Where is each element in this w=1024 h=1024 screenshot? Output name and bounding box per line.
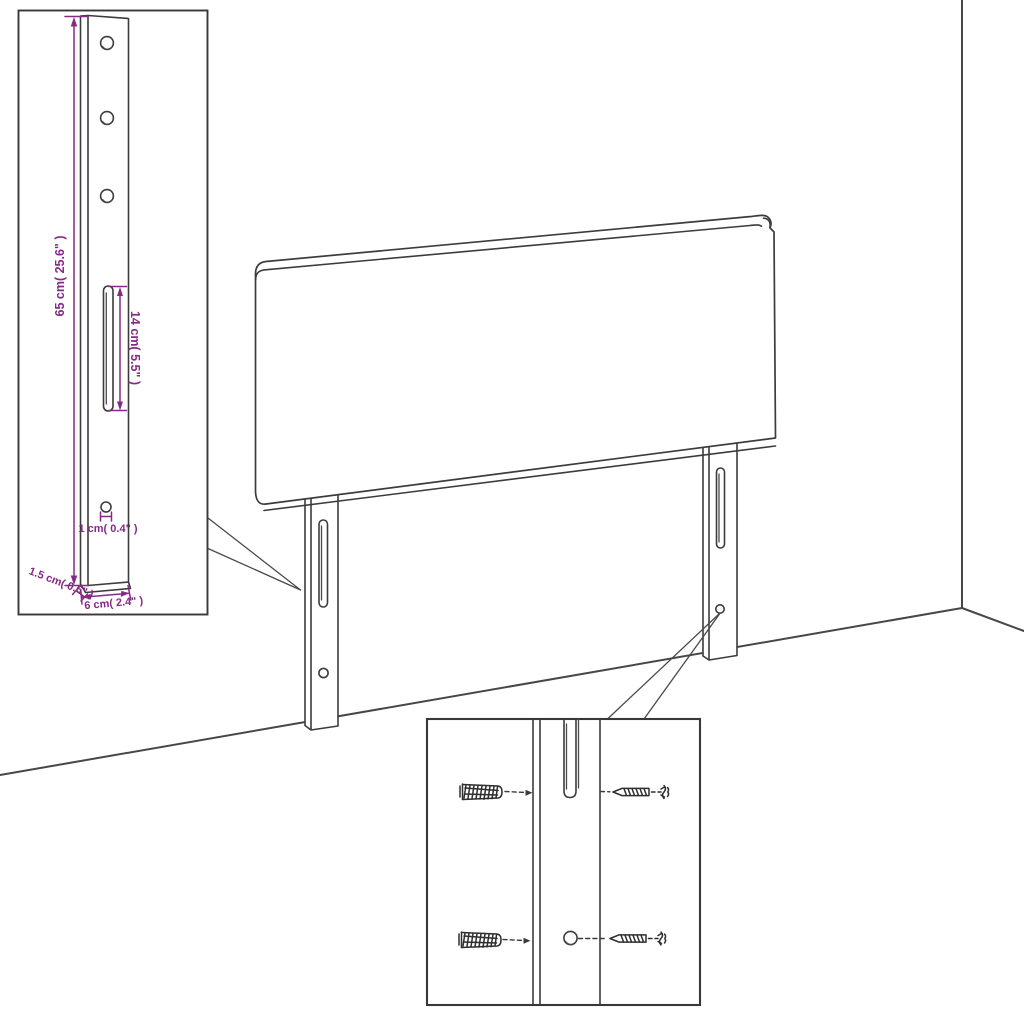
- floor-line-right: [962, 608, 1024, 631]
- slot-dimension-label: 14 cm( 5.5" ): [128, 311, 142, 385]
- right-leg-body: [703, 442, 737, 660]
- diagram-canvas: 65 cm( 25.6" ) 14 cm( 5.5" ) 1 cm( 0.4" …: [0, 0, 1024, 1024]
- callout-line-d: [644, 614, 720, 719]
- headboard-panel: [256, 215, 776, 510]
- wall-plug-bottom-leader: [503, 940, 524, 941]
- detail-box-mounting: [427, 719, 700, 1005]
- headboard-left-leg: [305, 492, 338, 730]
- detail-box-leg: 65 cm( 25.6" ) 14 cm( 5.5" ) 1 cm( 0.4" …: [19, 11, 208, 615]
- wall-plug-top-leader: [505, 792, 526, 793]
- callout-lines-top: [208, 518, 301, 590]
- panel-outline: [256, 215, 776, 504]
- callout-line-a: [208, 518, 301, 590]
- height-dimension-label: 65 cm( 25.6" ): [53, 236, 67, 317]
- headboard-diagram: 65 cm( 25.6" ) 14 cm( 5.5" ) 1 cm( 0.4" …: [0, 0, 1024, 1024]
- hole-dimension-label: 1 cm( 0.4" ): [78, 523, 137, 535]
- headboard-right-leg: [703, 442, 737, 660]
